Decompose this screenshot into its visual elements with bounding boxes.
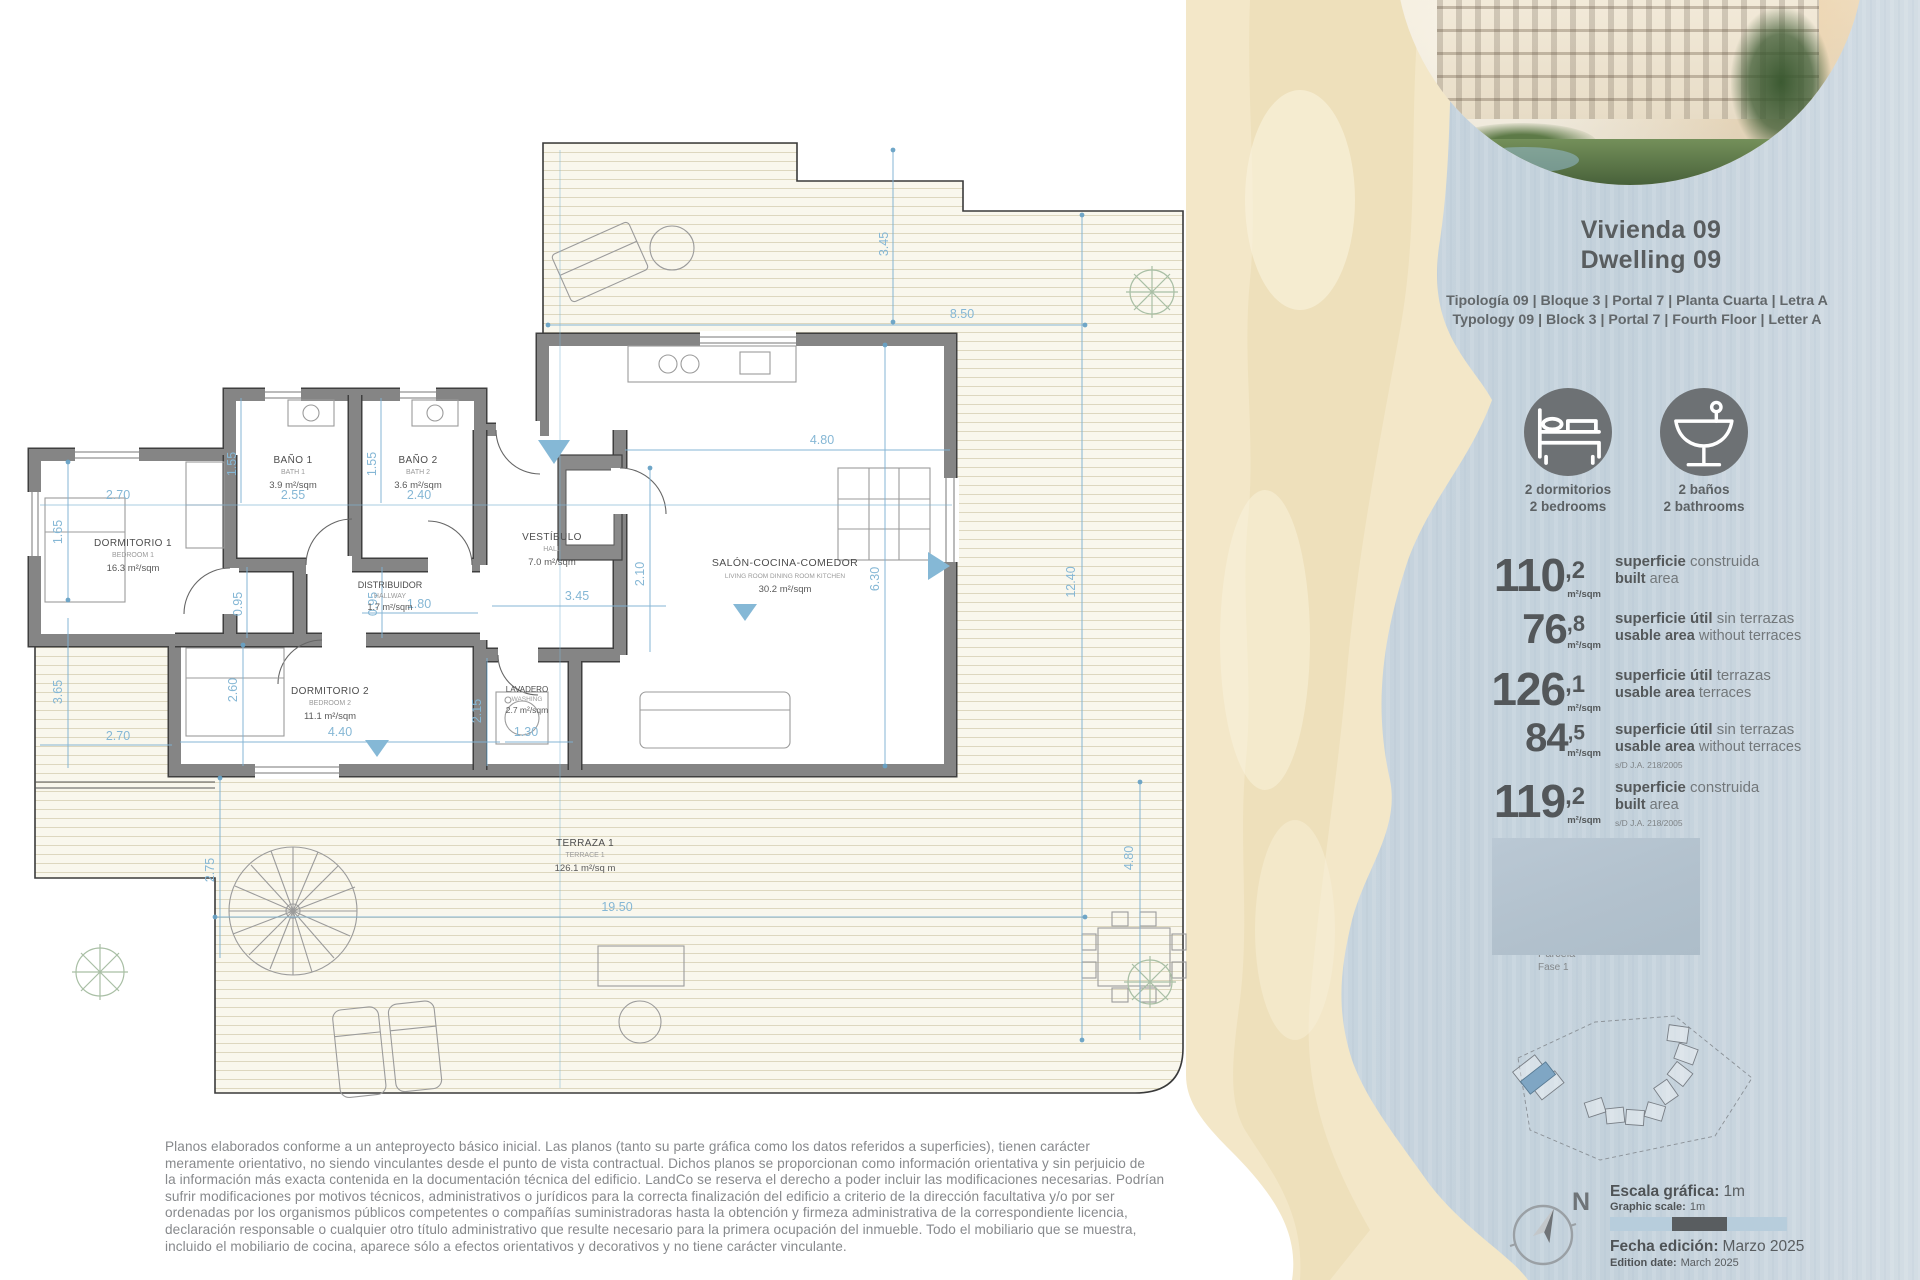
svg-text:126.1 m²/sq m: 126.1 m²/sq m xyxy=(555,863,616,874)
svg-text:LAVADERO: LAVADERO xyxy=(506,685,548,694)
stat-value: 126 xyxy=(1491,663,1565,715)
svg-text:DORMITORIO 1: DORMITORIO 1 xyxy=(94,538,172,549)
disclaimer-line: meramente orientativo, no siendo vincula… xyxy=(165,1156,1164,1173)
stat-unit: m²/sqm xyxy=(1567,640,1601,651)
disclaimer-line: Planos elaborados conforme a un anteproy… xyxy=(165,1139,1164,1156)
dim-label: 2.70 xyxy=(106,488,130,502)
dim-label: 1.55 xyxy=(365,452,379,476)
disclaimer-line: ordenadas por los organismos públicos co… xyxy=(165,1205,1164,1222)
stat-value: 119 xyxy=(1494,775,1565,827)
dim-label: 0.95 xyxy=(231,592,245,616)
dim-label: 19.50 xyxy=(601,900,632,914)
svg-text:BEDROOM 2: BEDROOM 2 xyxy=(309,700,351,707)
svg-text:30.2 m²/sqm: 30.2 m²/sqm xyxy=(759,584,812,595)
svg-text:11.1 m²/sqm: 11.1 m²/sqm xyxy=(304,711,356,722)
site-plan-placeholder xyxy=(1492,838,1700,955)
stat-unit: m²/sqm xyxy=(1567,589,1601,600)
legal-disclaimer: Planos elaborados conforme a un anteproy… xyxy=(165,1139,1164,1255)
washbasin-icon xyxy=(1660,388,1748,476)
svg-text:TERRACE 1: TERRACE 1 xyxy=(565,852,604,859)
dim-label: 1.65 xyxy=(51,520,65,544)
bedrooms-feature-circle xyxy=(1524,388,1612,476)
dim-label: 2.60 xyxy=(226,678,240,702)
svg-text:VESTÍBULO: VESTÍBULO xyxy=(522,530,582,543)
svg-text:BAÑO 2: BAÑO 2 xyxy=(398,453,437,466)
svg-text:DISTRIBUIDOR: DISTRIBUIDOR xyxy=(358,580,423,590)
graphic-scale-en: Graphic scale:1m xyxy=(1610,1201,1705,1213)
stat-usable-area-decree: 84,5m²/sqm superficie útil sin terrazas … xyxy=(1400,716,1830,772)
bed-icon xyxy=(1524,388,1612,476)
dim-label: 3.45 xyxy=(565,589,589,603)
disclaimer-line: declaración responsable o cualquier otro… xyxy=(165,1222,1164,1239)
dwelling-title-es: Vivienda 09 xyxy=(1451,215,1851,245)
svg-text:HALL: HALL xyxy=(543,546,561,553)
svg-text:DORMITORIO 2: DORMITORIO 2 xyxy=(291,686,369,697)
dwelling-title-en: Dwelling 09 xyxy=(1451,245,1851,275)
dim-label: 2.15 xyxy=(470,699,484,723)
graphic-scale-es: Escala gráfica:1m xyxy=(1610,1183,1745,1201)
typology-en: Typology 09 | Block 3 | Portal 7 | Fourt… xyxy=(1377,311,1897,330)
svg-text:HALLWAY: HALLWAY xyxy=(374,593,406,600)
bathrooms-label-es: 2 baños xyxy=(1634,482,1774,499)
svg-text:16.3 m²/sqm: 16.3 m²/sqm xyxy=(107,563,160,574)
stat-unit: m²/sqm xyxy=(1567,815,1601,826)
svg-text:1.7 m²/sqm: 1.7 m²/sqm xyxy=(367,602,412,612)
stat-built-area-decree: 119,2m²/sqm superficie construida built … xyxy=(1400,774,1830,830)
stat-value: 84 xyxy=(1525,716,1568,760)
dim-label: 3.65 xyxy=(51,680,65,704)
svg-text:BATH 1: BATH 1 xyxy=(281,469,305,476)
svg-text:BATH 2: BATH 2 xyxy=(406,469,430,476)
stat-value: 76 xyxy=(1522,605,1567,652)
site-location-map xyxy=(1500,1008,1770,1178)
svg-text:WASHING: WASHING xyxy=(512,696,543,703)
scale-bar xyxy=(1610,1217,1787,1231)
dim-label: 6.30 xyxy=(868,567,882,591)
bedrooms-label-es: 2 dormitorios xyxy=(1498,482,1638,499)
dim-label: 4.80 xyxy=(1122,846,1136,870)
fase-label: Fase 1 xyxy=(1538,961,1575,974)
stat-built-area: 110,2m²/sqm superficie construida built … xyxy=(1400,548,1830,604)
typology-line: Tipología 09 | Bloque 3 | Portal 7 | Pla… xyxy=(1377,292,1897,330)
svg-text:3.6 m²/sqm: 3.6 m²/sqm xyxy=(394,480,442,491)
svg-text:TERRAZA 1: TERRAZA 1 xyxy=(556,838,614,849)
stat-unit: m²/sqm xyxy=(1567,748,1601,759)
stat-terrace-area: 126,1m²/sqm superficie útil terrazas usa… xyxy=(1400,662,1830,718)
svg-text:LIVING ROOM DINING ROOM KITCHE: LIVING ROOM DINING ROOM KITCHEN xyxy=(725,573,846,580)
dim-label: 2.70 xyxy=(106,729,130,743)
compass-icon xyxy=(1506,1198,1580,1272)
disclaimer-line: sufrir modificaciones por motivos técnic… xyxy=(165,1189,1164,1206)
bedrooms-label: 2 dormitorios 2 bedrooms xyxy=(1498,482,1638,515)
typology-es: Tipología 09 | Bloque 3 | Portal 7 | Pla… xyxy=(1377,292,1897,311)
dim-label: 2.10 xyxy=(633,562,647,586)
svg-text:7.0 m²/sqm: 7.0 m²/sqm xyxy=(528,557,576,568)
svg-text:2.7 m²/sqm: 2.7 m²/sqm xyxy=(506,705,549,715)
stat-unit: m²/sqm xyxy=(1567,703,1601,714)
apartment-walls xyxy=(35,340,950,770)
stat-value: 110 xyxy=(1494,549,1565,601)
dwelling-title: Vivienda 09 Dwelling 09 xyxy=(1451,215,1851,275)
compass-north-label: N xyxy=(1572,1188,1590,1217)
dim-label: 12.40 xyxy=(1064,566,1078,597)
dim-label: 3.45 xyxy=(877,232,891,256)
dim-label: 1.55 xyxy=(225,452,239,476)
bathrooms-feature-circle xyxy=(1660,388,1748,476)
brochure-page: 3.45 8.50 4.80 2.70 1.65 1.55 2.55 1.55 … xyxy=(0,0,1920,1280)
bathrooms-label-en: 2 bathrooms xyxy=(1634,499,1774,516)
svg-text:BEDROOM 1: BEDROOM 1 xyxy=(112,552,154,559)
edition-date-en: Edition date:March 2025 xyxy=(1610,1257,1739,1269)
dim-label: 2.75 xyxy=(203,858,217,882)
room-label-lavadero: LAVADERO WASHING 2.7 m²/sqm xyxy=(506,685,549,715)
svg-text:BAÑO 1: BAÑO 1 xyxy=(273,453,312,466)
disclaimer-line: la información más exacta contenida en l… xyxy=(165,1172,1164,1189)
dim-label: 4.80 xyxy=(810,433,834,447)
bathrooms-label: 2 baños 2 bathrooms xyxy=(1634,482,1774,515)
disclaimer-line: incluido el mobiliario de cocina, aparec… xyxy=(165,1239,1164,1256)
svg-text:SALÓN-COCINA-COMEDOR: SALÓN-COCINA-COMEDOR xyxy=(712,556,858,569)
bedrooms-label-en: 2 bedrooms xyxy=(1498,499,1638,516)
dim-label: 1.30 xyxy=(514,725,538,739)
dim-label: 4.40 xyxy=(328,725,352,739)
dim-label: 8.50 xyxy=(950,307,974,321)
stat-usable-area: 76,8m²/sqm superficie útil sin terrazas … xyxy=(1400,605,1830,661)
svg-text:3.9 m²/sqm: 3.9 m²/sqm xyxy=(269,480,317,491)
edition-date-es: Fecha edición:Marzo 2025 xyxy=(1610,1238,1804,1256)
